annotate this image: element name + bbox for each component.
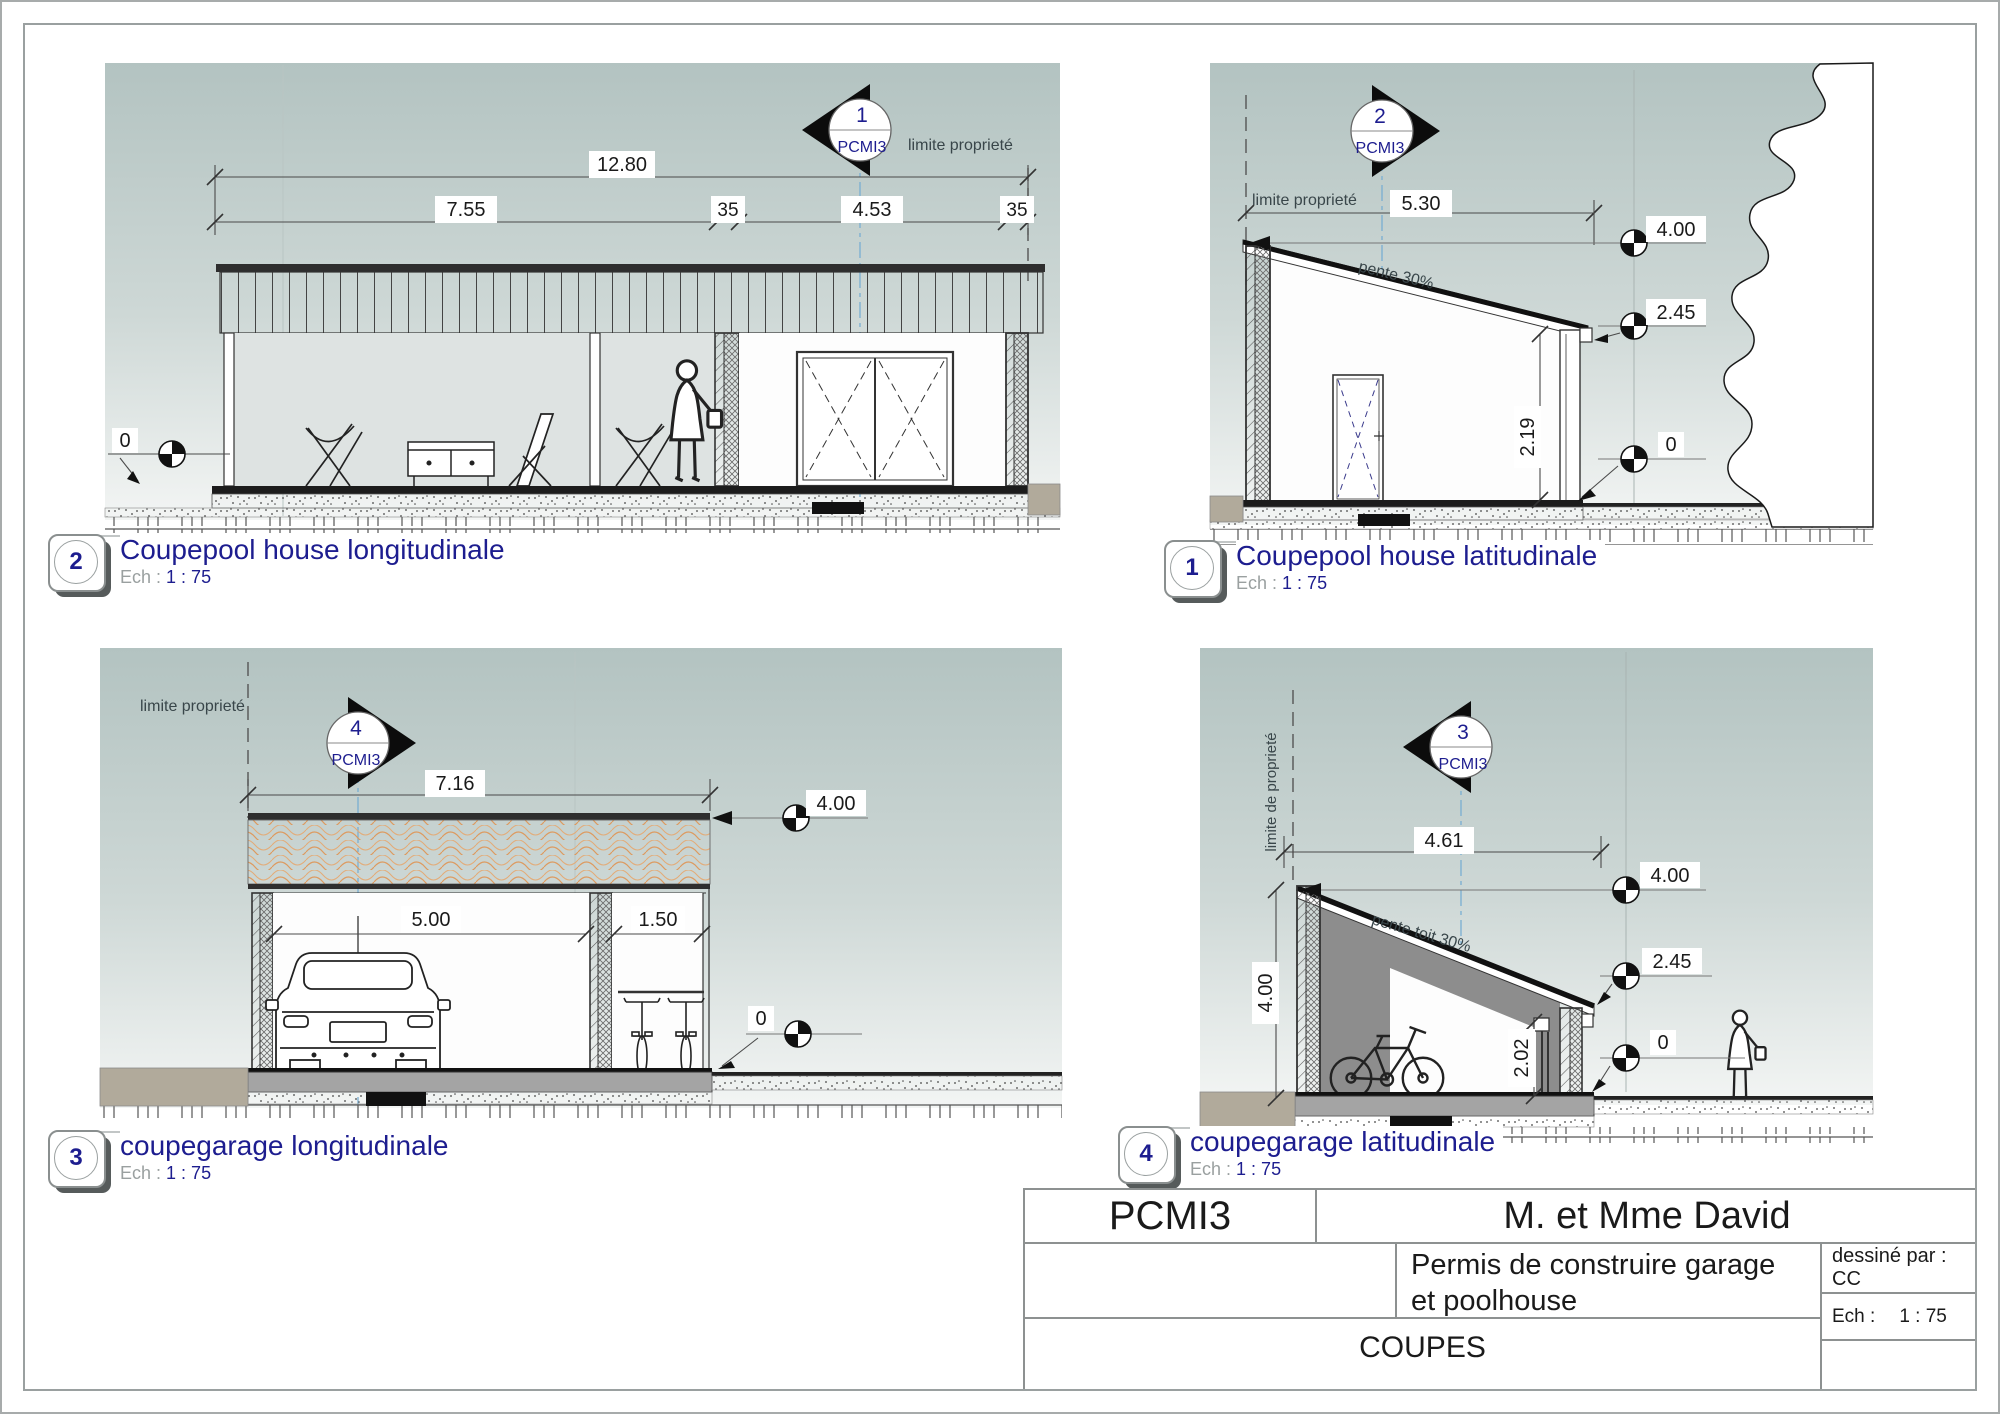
section-title: Coupepool house latitudinale: [1236, 540, 1605, 572]
client-name: M. et Mme David: [1317, 1190, 1977, 1244]
property-limit-label: limite proprieté: [908, 137, 1013, 154]
dim-store: 1.50: [639, 909, 678, 931]
detail-bubble: 4: [1118, 1126, 1176, 1184]
svg-text:2.45: 2.45: [1653, 951, 1692, 973]
section-title: Coupepool house longitudinale: [120, 534, 513, 566]
section-title: coupegarage latitudinale: [1190, 1126, 1503, 1158]
dim-wall-height: 4.00: [1255, 974, 1277, 1013]
cut-wall: [1006, 333, 1028, 486]
foundation-pad: [366, 1092, 426, 1106]
bubble-number: 1: [1185, 554, 1198, 582]
floor-slab: [1295, 1096, 1594, 1116]
terrain-block: [1200, 1092, 1295, 1130]
logo-cell: [1025, 1244, 1397, 1319]
section-scale: Ech : 1 : 75: [120, 1162, 457, 1184]
gutter-detail: [1580, 328, 1592, 342]
roof-edge: [248, 813, 710, 820]
section-scale: Ech : 1 : 75: [120, 566, 513, 588]
dim-wall-height: 2.19: [1517, 418, 1539, 457]
svg-text:0: 0: [119, 430, 130, 452]
terrain-block: [1028, 484, 1060, 515]
post: [590, 333, 600, 486]
svg-text:0: 0: [1665, 434, 1676, 456]
cut-wall: [1246, 246, 1270, 505]
sheet-name: COUPES: [1025, 1319, 1822, 1391]
dim-total: 7.16: [436, 773, 475, 795]
project-description: Permis de construire garage et poolhouse: [1397, 1244, 1822, 1319]
label-pool-house-lateral: 1 Coupepool house latitudinale Ech : 1 :…: [1164, 540, 1605, 598]
dim-width: 4.61: [1425, 830, 1464, 852]
project-code: PCMI3: [1025, 1190, 1317, 1244]
dim-mid: 4.53: [853, 199, 892, 221]
cut-wall: [252, 893, 273, 1072]
label-garage-lateral: 4 coupegarage latitudinale Ech : 1 : 75: [1118, 1126, 1503, 1184]
bubble-number: 3: [69, 1144, 82, 1172]
floor-slab: [248, 1072, 712, 1092]
section-title: coupegarage longitudinale: [120, 1130, 457, 1162]
section-pool-house-lateral: 5.30 2.19 limite proprieté pente 30% 4.0…: [1210, 63, 1873, 545]
empty-cell: [1822, 1341, 1977, 1391]
dim-total: 12.80: [597, 154, 647, 176]
svg-text:4: 4: [350, 717, 362, 740]
svg-text:1: 1: [856, 104, 868, 127]
svg-text:4.00: 4.00: [817, 793, 856, 815]
terrain-block: [100, 1068, 248, 1106]
sliding-glass-door: [797, 352, 953, 486]
foundation-pad: [812, 502, 864, 514]
ground: [105, 484, 1060, 533]
section-scale: Ech : 1 : 75: [1236, 572, 1605, 594]
svg-text:PCMI3: PCMI3: [332, 752, 381, 769]
property-limit-label: limite proprieté: [1252, 192, 1357, 209]
gutter-detail: [1582, 1014, 1593, 1027]
scale-cell: Ech : 1 : 75: [1822, 1294, 1977, 1341]
title-block: PCMI3 M. et Mme David Permis de construi…: [1023, 1188, 1977, 1391]
bubble-number: 4: [1139, 1140, 1152, 1168]
tiled-roof: [248, 820, 710, 884]
interior-door: [1333, 375, 1384, 503]
dim-width: 5.30: [1402, 193, 1441, 215]
section-scale: Ech : 1 : 75: [1190, 1158, 1503, 1180]
svg-text:4.00: 4.00: [1651, 865, 1690, 887]
detail-bubble: 2: [48, 534, 106, 592]
svg-text:PCMI3: PCMI3: [838, 139, 887, 156]
post: [224, 333, 234, 486]
drawn-by: dessiné par : CC: [1822, 1244, 1977, 1294]
foundation-pad: [1358, 514, 1410, 526]
property-limit-label: limite proprieté: [140, 698, 245, 715]
label-garage-longitudinal: 3 coupegarage longitudinale Ech : 1 : 75: [48, 1130, 457, 1188]
cut-wall: [590, 893, 612, 1072]
svg-text:4.00: 4.00: [1657, 219, 1696, 241]
timber-cladding-band: [220, 272, 1043, 333]
dim-door-height: 2.02: [1511, 1039, 1533, 1078]
property-limit-label: limite de proprieté: [1263, 732, 1280, 851]
bubble-number: 2: [69, 548, 82, 576]
svg-text:PCMI3: PCMI3: [1439, 756, 1488, 773]
section-pool-house-longitudinal: 12.80 7.55 35 4.53 35 0 1 PCMI3 limite p…: [105, 63, 1060, 533]
dim-wall: 35: [717, 200, 738, 221]
svg-text:2: 2: [1374, 105, 1386, 128]
drawing-sheet: 12.80 7.55 35 4.53 35 0 1 PCMI3 limite p…: [0, 0, 2000, 1414]
detail-bubble: 3: [48, 1130, 106, 1188]
pool-house-elevation: [216, 264, 1045, 486]
dim-bay: 5.00: [412, 909, 451, 931]
svg-text:PCMI3: PCMI3: [1356, 140, 1405, 157]
svg-text:3: 3: [1457, 721, 1469, 744]
svg-text:2.45: 2.45: [1657, 302, 1696, 324]
terrain-block: [1210, 496, 1243, 522]
dim-wall: 35: [1006, 200, 1027, 221]
section-garage-lateral: 4.61 4.00 2.02 limite de proprieté pente…: [1200, 648, 1873, 1143]
detail-bubble: 1: [1164, 540, 1222, 598]
svg-text:0: 0: [1657, 1032, 1668, 1054]
cut-wall: [1297, 886, 1320, 1100]
roof-edge: [216, 264, 1045, 272]
section-garage-longitudinal: 7.16 5.00 1.50 4.00 0 4 PCMI3 limite pro…: [100, 648, 1062, 1120]
svg-text:0: 0: [755, 1008, 766, 1030]
dim-left: 7.55: [447, 199, 486, 221]
label-pool-house-longitudinal: 2 Coupepool house longitudinale Ech : 1 …: [48, 534, 513, 592]
